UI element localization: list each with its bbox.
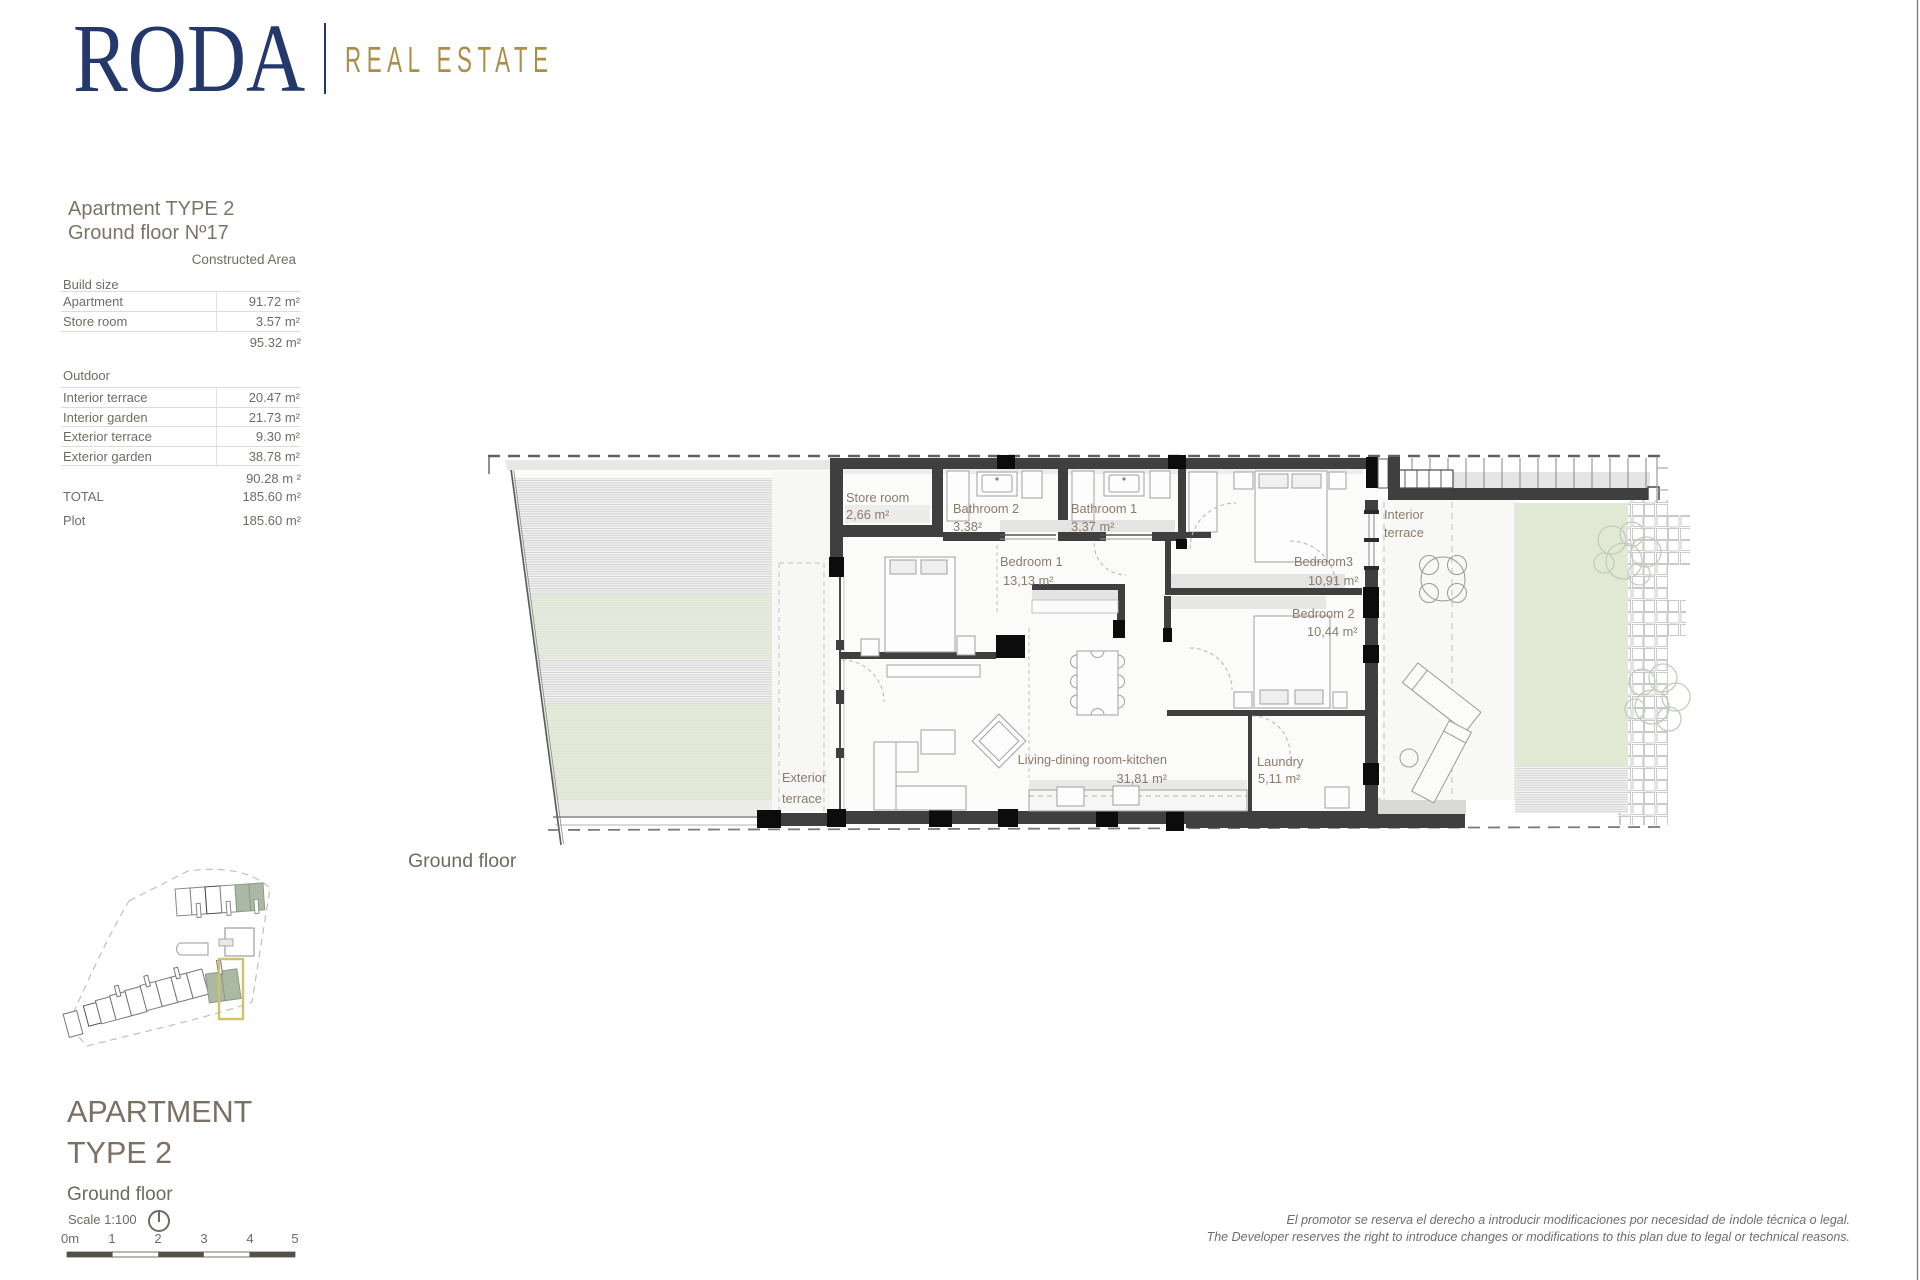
svg-text:1: 1: [108, 1231, 115, 1246]
svg-text:Interior: Interior: [1384, 507, 1425, 522]
svg-text:Exterior: Exterior: [782, 770, 827, 785]
svg-text:Store room: Store room: [846, 490, 909, 505]
svg-text:Bathroom 1: Bathroom 1: [1071, 501, 1137, 516]
svg-text:2,66 m²: 2,66 m²: [846, 507, 890, 522]
svg-text:0m: 0m: [61, 1231, 79, 1246]
svg-text:2: 2: [154, 1231, 161, 1246]
svg-text:13,13 m²: 13,13 m²: [1003, 573, 1054, 588]
svg-text:3,37 m²: 3,37 m²: [1071, 519, 1115, 534]
svg-text:10,91 m²: 10,91 m²: [1308, 573, 1359, 588]
svg-text:Bedroom 2: Bedroom 2: [1292, 606, 1355, 621]
svg-text:10,44 m²: 10,44 m²: [1307, 624, 1358, 639]
svg-text:Bedroom 1: Bedroom 1: [1000, 554, 1063, 569]
svg-text:Bedroom3: Bedroom3: [1294, 554, 1353, 569]
svg-text:terrace: terrace: [1384, 525, 1424, 540]
svg-text:terrace: terrace: [782, 791, 822, 806]
svg-text:31,81 m²: 31,81 m²: [1116, 771, 1167, 786]
svg-text:Laundry: Laundry: [1257, 754, 1304, 769]
svg-text:3: 3: [200, 1231, 207, 1246]
svg-text:Bathroom 2: Bathroom 2: [953, 501, 1019, 516]
svg-text:5: 5: [291, 1231, 298, 1246]
svg-text:Living-dining room-kitchen: Living-dining room-kitchen: [1018, 752, 1167, 767]
svg-text:5,11 m²: 5,11 m²: [1258, 771, 1301, 786]
svg-text:4: 4: [246, 1231, 253, 1246]
svg-text:3,38²: 3,38²: [953, 519, 983, 534]
